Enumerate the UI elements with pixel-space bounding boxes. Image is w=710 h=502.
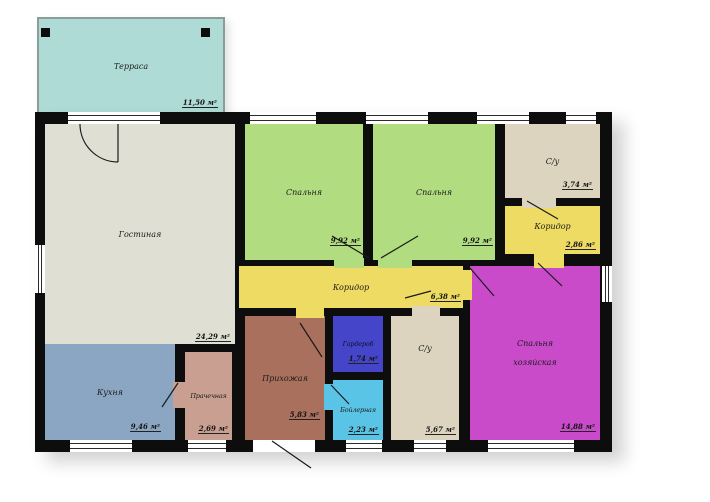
room-label-wardrobe: Гардероб [343,340,374,348]
room-label-corridor-top: Коридор [534,222,570,231]
room-area-terrace: 11,50 м² [182,99,218,108]
room-label-master-bedroom: Спальня хозяйская [503,334,567,372]
room-label-terrace: Терраса [114,62,148,71]
room-boiler: Бойлерная 2,23 м² [333,380,383,440]
door-opening-bedroom-left [334,258,364,268]
window [414,440,446,452]
room-area-bedroom-left: 9,92 м² [330,237,361,246]
room-label-bathroom-bottom: С/у [418,344,431,353]
room-label-laundry: Прачечная [190,392,226,400]
room-laundry: Прачечная 2,69 м² [185,352,232,440]
room-label-bedroom-right: Спальня [416,188,452,197]
room-area-bedroom-right: 9,92 м² [462,237,493,246]
window [250,112,316,124]
room-master-bedroom: Спальня хозяйская 14,88 м² [470,266,600,440]
window [346,440,382,452]
door-opening-bathroom-top [522,196,556,208]
door-opening-boiler [324,384,335,410]
door-opening-laundry [173,382,187,408]
window [477,112,529,124]
room-bathroom-top: С/у 3,74 м² [505,124,600,198]
room-area-bathroom-bottom: 5,67 м² [425,426,456,435]
room-area-bathroom-top: 3,74 м² [562,181,593,190]
window [566,112,596,124]
room-corridor-main: Коридор 6,38 м² [239,266,463,308]
door-opening-corridor-master [461,270,472,300]
room-living: Гостиная 24,29 м² [45,124,235,344]
room-label-kitchen: Кухня [97,388,123,397]
door-opening-corridor-top-master [534,252,564,268]
window [602,266,612,302]
room-area-laundry: 2,69 м² [198,425,229,434]
door-opening-bedroom-right [378,258,412,268]
room-area-hallway: 5,83 м² [289,411,320,420]
window [488,440,574,452]
window [35,245,45,293]
room-area-wardrobe: 1,74 м² [348,355,379,364]
window [70,440,132,452]
room-bedroom-left: Спальня 9,92 м² [245,124,363,260]
window [68,112,160,124]
room-bathroom-bottom: С/у 5,67 м² [391,316,459,440]
room-label-living: Гостиная [119,230,162,239]
floor-plan: Терраса 11,50 м² Гостиная 24,29 м² Спаль… [0,0,710,502]
room-label-boiler: Бойлерная [340,406,376,414]
room-label-bedroom-left: Спальня [286,188,322,197]
room-terrace: Терраса 11,50 м² [37,17,225,115]
room-label-bathroom-top: С/у [546,157,559,166]
room-corridor-top: Коридор 2,86 м² [505,206,600,254]
room-label-corridor-main: Коридор [333,283,369,292]
window [366,112,428,124]
window [188,440,226,452]
room-area-kitchen: 9,46 м² [130,423,161,432]
room-area-living: 24,29 м² [195,333,231,342]
room-wardrobe: Гардероб 1,74 м² [333,316,383,372]
terrace-post-right [201,28,210,37]
door-opening-hallway [296,306,324,318]
door-opening-bathroom-bottom [412,306,440,318]
room-bedroom-right: Спальня 9,92 м² [373,124,495,260]
room-area-corridor-main: 6,38 м² [430,293,461,302]
entrance-opening [253,440,315,452]
room-kitchen: Кухня 9,46 м² [45,344,175,440]
room-hallway: Прихожая 5,83 м² [245,316,325,440]
room-area-boiler: 2,23 м² [348,426,379,435]
room-area-master-bedroom: 14,88 м² [560,423,596,432]
room-area-corridor-top: 2,86 м² [565,241,596,250]
room-label-hallway: Прихожая [262,374,308,383]
terrace-post-left [41,28,50,37]
